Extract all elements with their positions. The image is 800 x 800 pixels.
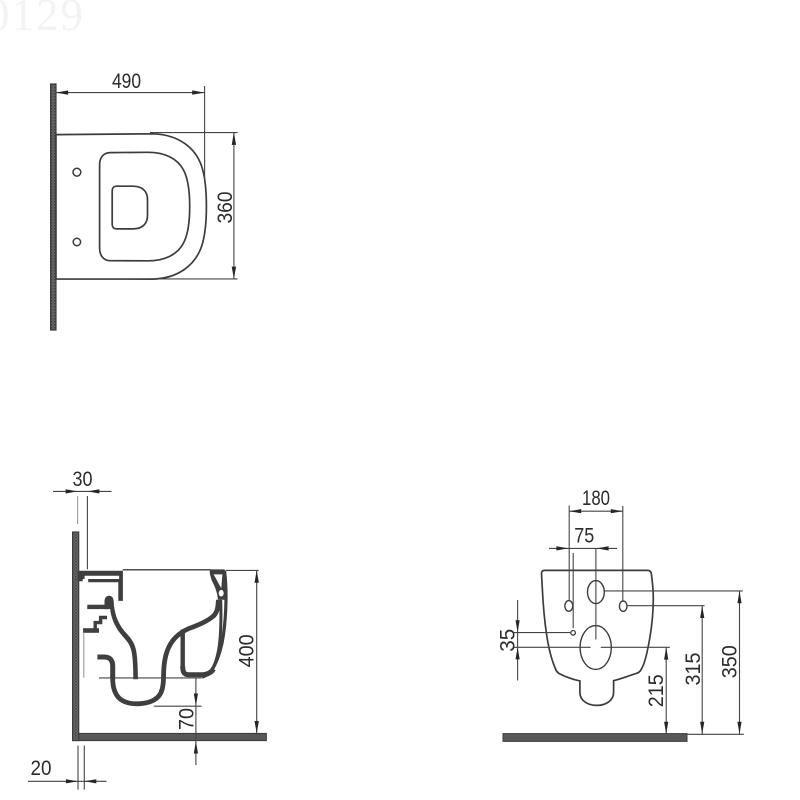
svg-text:400: 400 — [235, 634, 258, 667]
svg-text:30: 30 — [73, 468, 93, 491]
svg-text:180: 180 — [582, 487, 610, 510]
svg-text:315: 315 — [682, 653, 705, 686]
svg-text:360: 360 — [214, 192, 237, 224]
svg-text:35: 35 — [496, 629, 519, 652]
svg-text:0129: 0129 — [0, 0, 85, 40]
svg-text:350: 350 — [719, 645, 742, 678]
svg-text:75: 75 — [574, 525, 594, 548]
svg-text:20: 20 — [31, 757, 52, 780]
svg-text:215: 215 — [645, 674, 668, 707]
svg-text:490: 490 — [112, 70, 141, 93]
svg-text:70: 70 — [176, 708, 199, 730]
